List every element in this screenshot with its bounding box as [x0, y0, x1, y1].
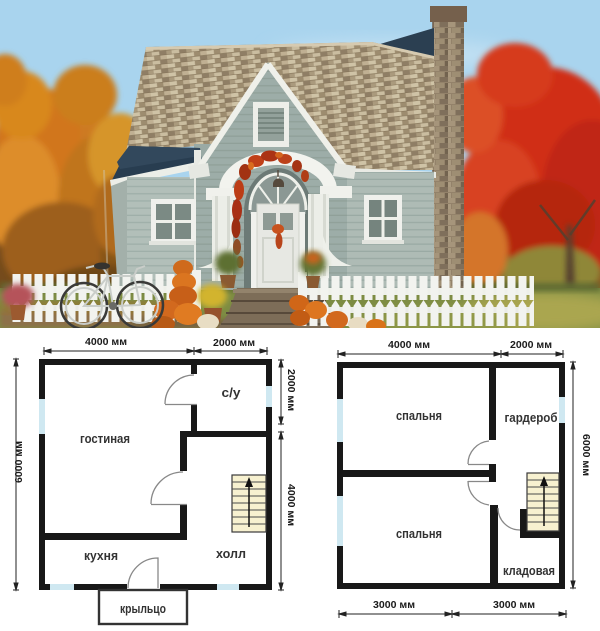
svg-text:2000 мм: 2000 мм [510, 340, 552, 351]
svg-text:6000 мм: 6000 мм [580, 434, 591, 476]
svg-text:кладовая: кладовая [503, 563, 555, 578]
svg-text:с/у: с/у [222, 385, 242, 400]
svg-text:кухня: кухня [84, 548, 118, 563]
svg-text:спальня: спальня [396, 526, 442, 541]
svg-text:2000 мм: 2000 мм [285, 369, 296, 411]
svg-text:4000 мм: 4000 мм [285, 484, 296, 526]
svg-text:холл: холл [216, 546, 246, 561]
svg-text:гардероб: гардероб [505, 410, 558, 425]
svg-text:4000 мм: 4000 мм [85, 337, 127, 348]
svg-text:спальня: спальня [396, 408, 442, 423]
svg-text:6000 мм: 6000 мм [14, 441, 25, 483]
svg-text:3000 мм: 3000 мм [373, 600, 415, 611]
svg-text:гостиная: гостиная [80, 431, 130, 446]
svg-text:2000 мм: 2000 мм [213, 338, 255, 349]
svg-text:3000 мм: 3000 мм [493, 600, 535, 611]
svg-text:4000 мм: 4000 мм [388, 340, 430, 351]
svg-text:крыльцо: крыльцо [120, 601, 166, 616]
